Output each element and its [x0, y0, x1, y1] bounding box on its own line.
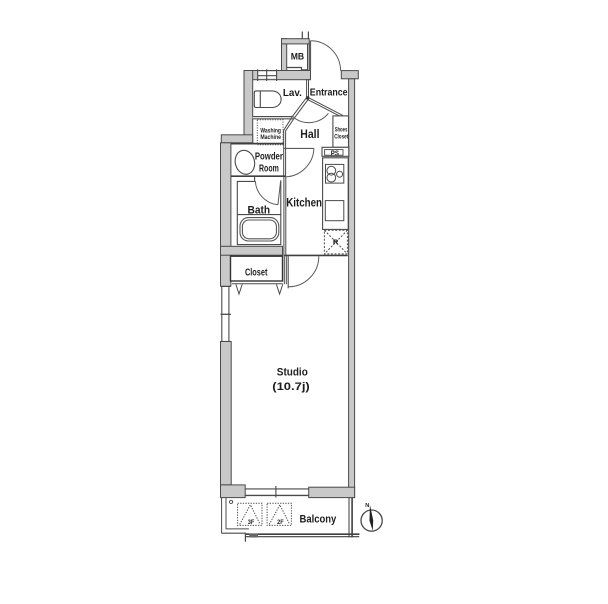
svg-text:Closet: Closet: [245, 267, 268, 279]
svg-text:3F: 3F: [248, 519, 255, 526]
svg-text:Entrance: Entrance: [310, 86, 348, 98]
svg-text:MB: MB: [291, 51, 305, 61]
svg-text:R: R: [333, 237, 339, 246]
svg-text:Balcony: Balcony: [300, 513, 338, 525]
svg-text:Bath: Bath: [248, 204, 271, 216]
svg-text:(10.7j): (10.7j): [272, 381, 310, 393]
svg-text:Powder: Powder: [255, 151, 283, 163]
svg-text:2F: 2F: [277, 519, 284, 526]
svg-text:PS: PS: [331, 150, 339, 157]
svg-text:Room: Room: [259, 162, 279, 174]
svg-text:Kitchen: Kitchen: [286, 197, 322, 209]
svg-text:Hall: Hall: [300, 127, 319, 141]
svg-text:N: N: [365, 503, 369, 509]
svg-text:Closet: Closet: [334, 133, 348, 140]
svg-text:Machine: Machine: [260, 134, 281, 141]
svg-text:Lav.: Lav.: [283, 87, 302, 99]
svg-text:Studio: Studio: [277, 367, 308, 379]
